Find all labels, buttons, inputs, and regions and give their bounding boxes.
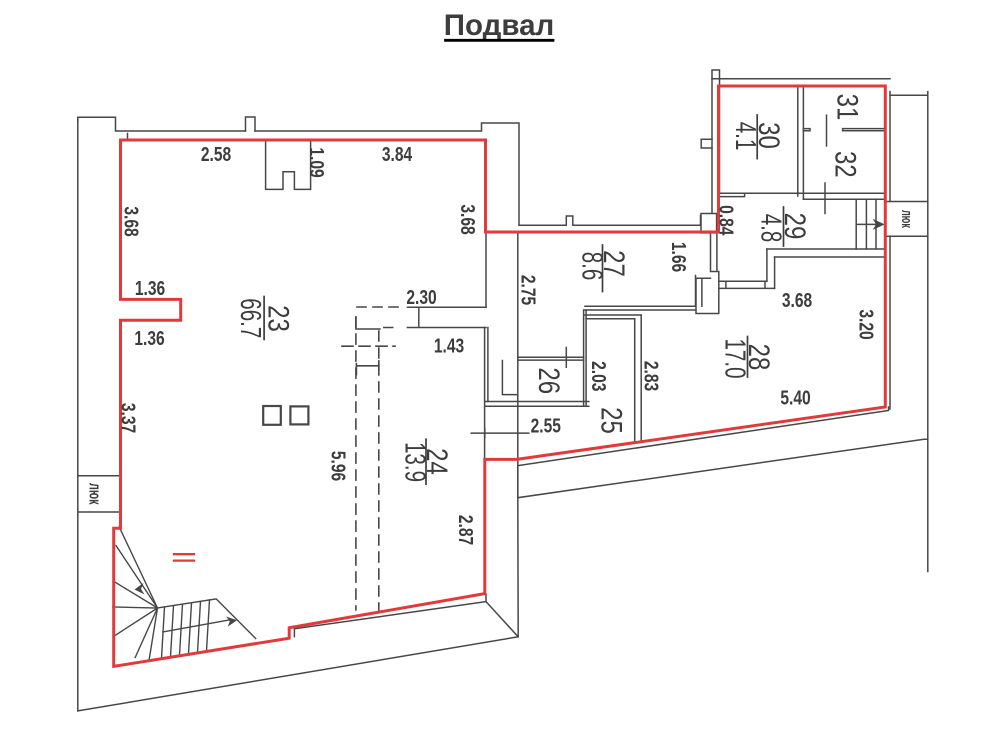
svg-text:1.09: 1.09 [305,147,327,177]
svg-text:3.84: 3.84 [382,143,412,165]
svg-text:8.6: 8.6 [575,252,607,281]
svg-text:3.68: 3.68 [782,289,812,311]
svg-text:3.37: 3.37 [117,403,139,433]
svg-text:26: 26 [532,367,566,394]
svg-text:2.75: 2.75 [517,275,539,305]
svg-text:25: 25 [595,407,629,434]
svg-text:3.68: 3.68 [120,206,142,236]
svg-text:3.20: 3.20 [855,309,877,339]
svg-text:2.30: 2.30 [406,286,436,308]
svg-text:люк: люк [86,483,105,505]
svg-text:4.8: 4.8 [754,214,786,243]
svg-text:1.36: 1.36 [135,277,165,299]
svg-text:31: 31 [831,94,865,121]
svg-text:Подвал: Подвал [444,9,554,42]
svg-text:1.66: 1.66 [667,242,689,272]
svg-text:0.84: 0.84 [715,205,737,235]
svg-text:люк: люк [898,210,915,229]
svg-text:2.55: 2.55 [531,414,561,436]
svg-text:13.9: 13.9 [398,442,430,482]
svg-text:5.96: 5.96 [327,451,349,481]
svg-text:2.87: 2.87 [454,515,476,545]
svg-text:1.36: 1.36 [134,327,164,349]
svg-text:1.43: 1.43 [434,335,464,357]
svg-text:3.68: 3.68 [456,204,478,234]
svg-text:2.58: 2.58 [201,143,231,165]
svg-text:17.0: 17.0 [718,338,750,378]
svg-text:66.7: 66.7 [234,298,266,338]
svg-text:32: 32 [829,151,863,178]
svg-text:2.83: 2.83 [640,361,662,391]
svg-text:4.1: 4.1 [729,122,761,151]
svg-text:5.40: 5.40 [780,387,810,409]
svg-text:2.03: 2.03 [588,361,610,391]
